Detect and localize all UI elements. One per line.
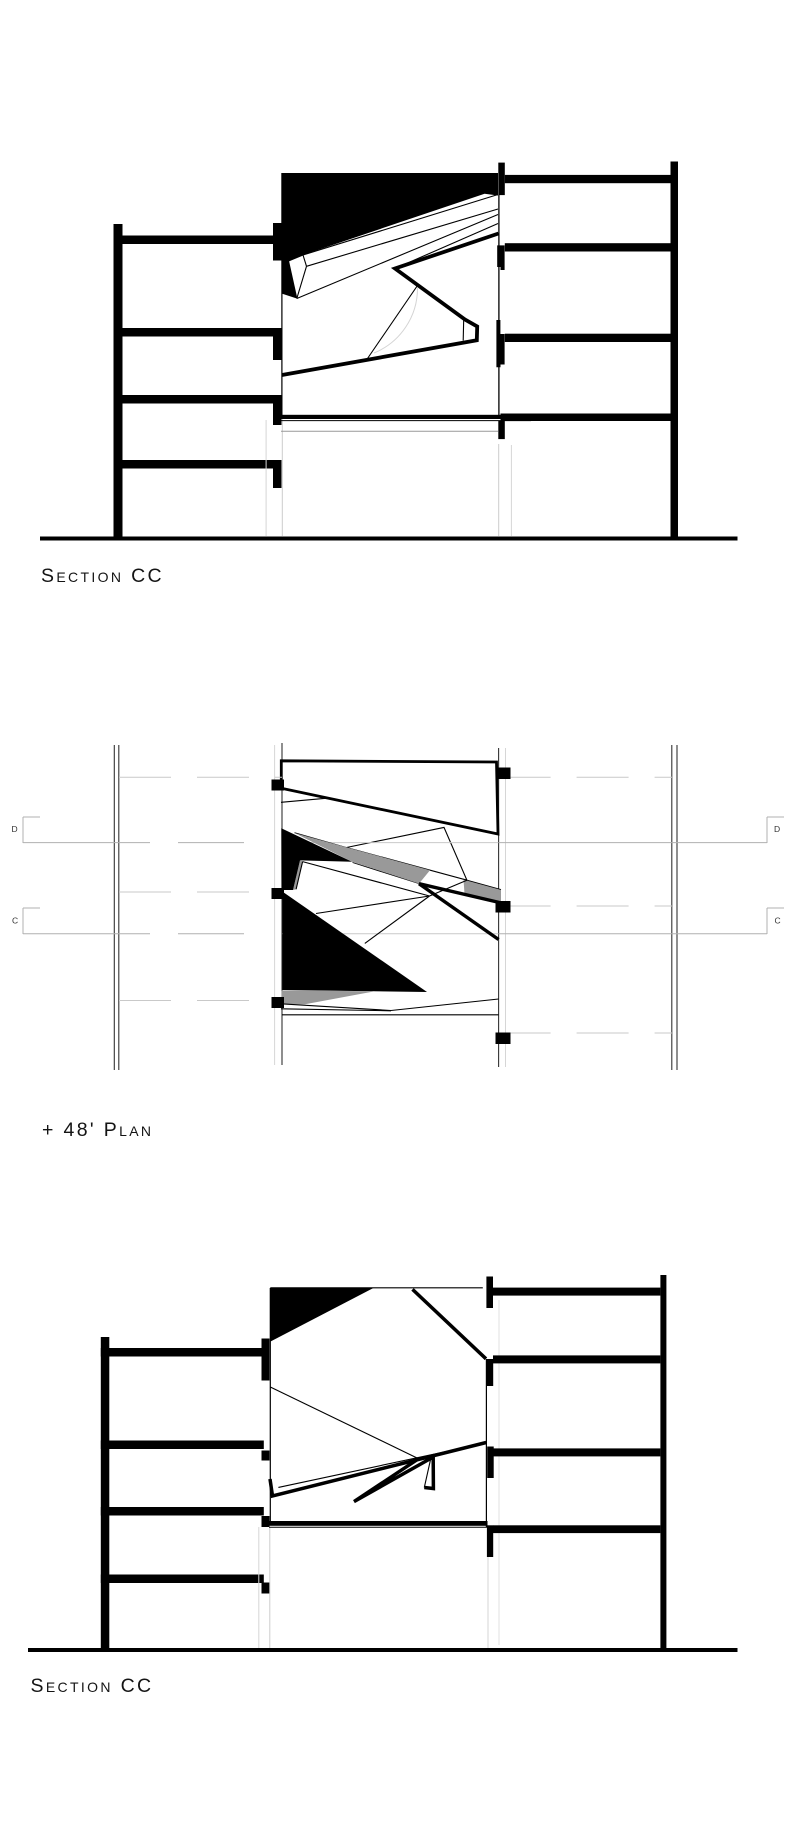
svg-text:+ 48' Plan: + 48' Plan	[42, 1119, 153, 1141]
svg-text:Section CC: Section CC	[31, 1675, 154, 1697]
svg-text:C: C	[775, 916, 781, 926]
svg-text:C: C	[12, 916, 18, 926]
svg-text:D: D	[12, 824, 18, 834]
svg-text:D: D	[774, 824, 780, 834]
svg-text:Section CC: Section CC	[41, 565, 164, 587]
